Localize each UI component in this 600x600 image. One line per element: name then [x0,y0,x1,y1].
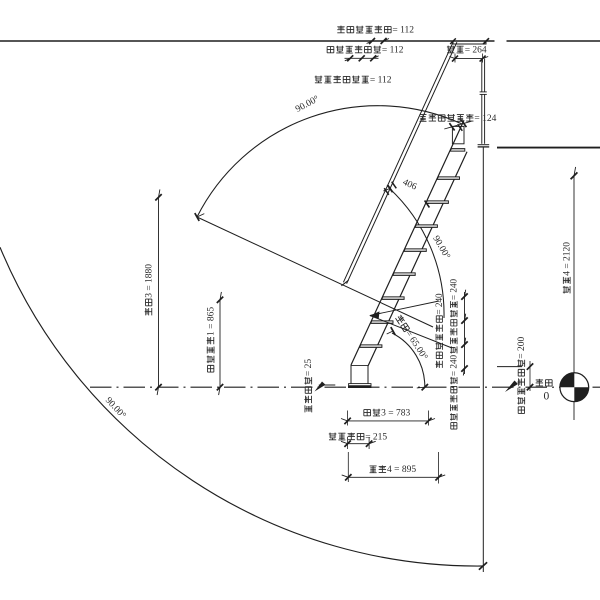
svg-text:= 264: = 264 [465,45,487,55]
svg-text:= 25: = 25 [304,359,314,376]
svg-text:0: 0 [544,391,550,403]
svg-text:4 = 2120: 4 = 2120 [563,242,573,276]
svg-text:= 240: = 240 [434,293,444,315]
svg-text:= 112: = 112 [370,75,392,85]
svg-text:4 = 895: 4 = 895 [387,465,416,475]
svg-text:= 112: = 112 [392,26,414,36]
svg-text:= 240: = 240 [449,354,459,376]
svg-text:= 240: = 240 [449,278,459,300]
svg-text:1 = 865: 1 = 865 [207,307,217,336]
svg-text:= 124: = 124 [474,114,496,124]
svg-text:= 215: = 215 [365,432,387,442]
svg-text:= 112: = 112 [382,46,404,56]
svg-text:3 = 783: 3 = 783 [381,409,410,419]
svg-text:= 200: = 200 [517,336,527,358]
svg-text:3 = 1880: 3 = 1880 [145,264,155,298]
